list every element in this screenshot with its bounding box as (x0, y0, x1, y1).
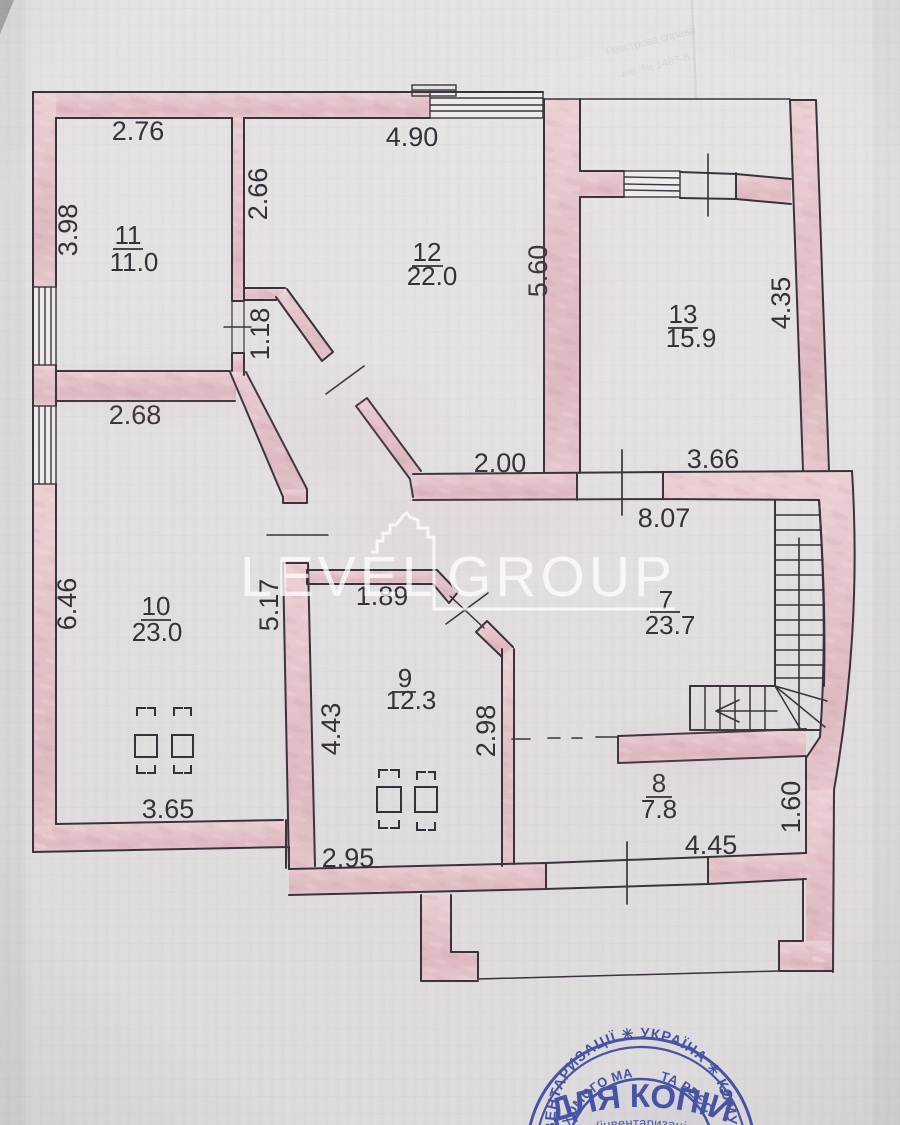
svg-text:LEVEL: LEVEL (240, 545, 437, 609)
svg-text:GROUP: GROUP (447, 545, 676, 609)
